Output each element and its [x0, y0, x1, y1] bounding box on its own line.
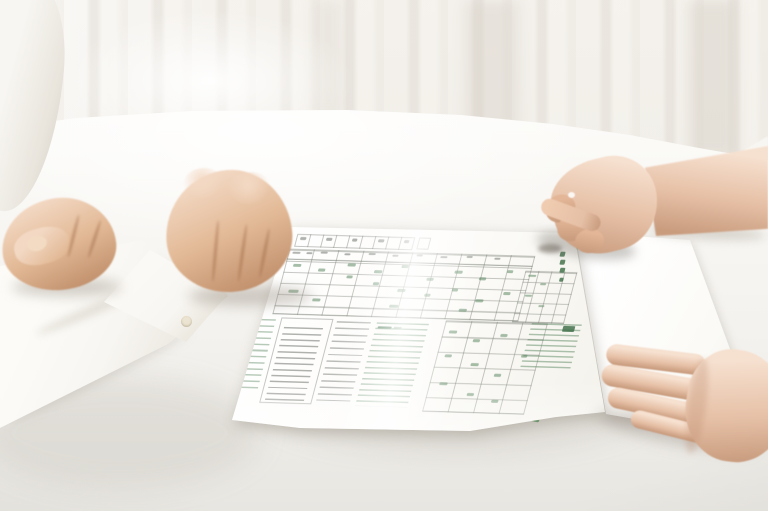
photo-scene [0, 0, 768, 511]
right-person-resting-hand [0, 0, 768, 511]
